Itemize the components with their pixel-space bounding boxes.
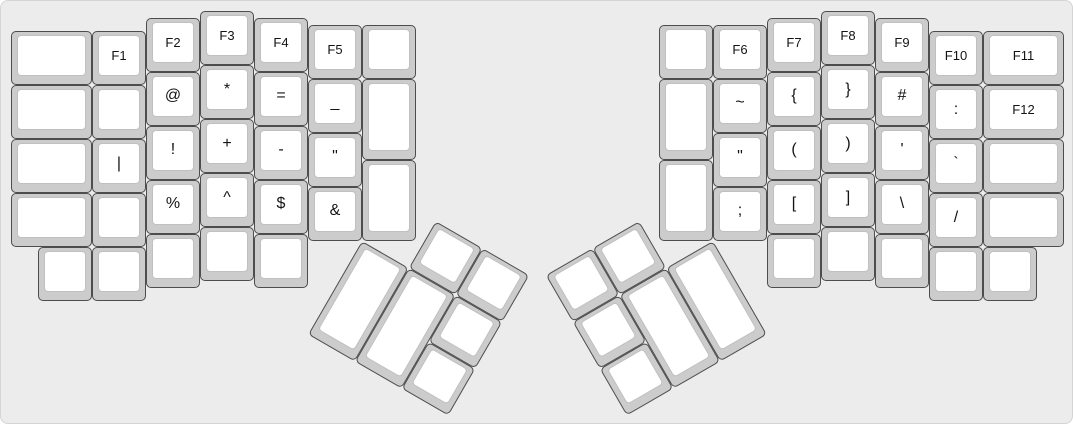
keycap-top: ( (773, 130, 815, 171)
key-blank[interactable] (200, 227, 254, 281)
keycap-top (98, 89, 140, 130)
key-tilde[interactable]: ~ (713, 79, 767, 133)
keycap-top: ` (935, 143, 977, 184)
key-legend: F5 (327, 43, 342, 56)
keycap-top (665, 164, 707, 232)
keycap-top: # (881, 76, 923, 117)
key-legend: & (330, 203, 341, 219)
key-blank[interactable] (11, 31, 92, 85)
key-double-quote[interactable]: " (308, 133, 362, 187)
key-open-brace[interactable]: { (767, 72, 821, 126)
keycap-top: $ (260, 184, 302, 225)
key-blank[interactable] (362, 160, 416, 241)
key-legend: ! (171, 142, 175, 158)
key-blank[interactable] (929, 247, 983, 301)
keycap-top (989, 251, 1031, 292)
key-legend: F8 (840, 29, 855, 42)
key-f10[interactable]: F10 (929, 31, 983, 85)
keycap-top: F5 (314, 29, 356, 70)
keycap-top (98, 197, 140, 238)
keycap-top: F7 (773, 22, 815, 63)
keycap-top: ~ (719, 83, 761, 124)
key-legend: F11 (1013, 49, 1034, 62)
key-legend: - (278, 142, 283, 158)
key-legend: @ (165, 88, 181, 104)
key-slash[interactable]: / (929, 193, 983, 247)
keycap-top: { (773, 76, 815, 117)
key-blank[interactable] (659, 160, 713, 241)
key-legend: ; (738, 203, 742, 219)
keycap-top: ; (719, 191, 761, 232)
keycap-top: ] (827, 177, 869, 218)
keyboard-layout-board: F1F2F3F4F5@*=_|!+-"%^$&F6F7F8F9F10F11~{}… (0, 0, 1073, 424)
keycap-top (17, 89, 86, 130)
keycap-top: : (935, 89, 977, 130)
key-blank[interactable] (821, 227, 875, 281)
key-legend: F2 (165, 36, 180, 49)
keycap-top: ^ (206, 177, 248, 218)
key-legend: } (845, 82, 850, 98)
keycap-top (44, 251, 86, 292)
key-caret[interactable]: ^ (200, 173, 254, 227)
key-blank[interactable] (659, 79, 713, 160)
key-legend: = (276, 88, 285, 104)
key-f5[interactable]: F5 (308, 25, 362, 79)
key-legend: ( (791, 142, 796, 158)
keycap-top: & (314, 191, 356, 232)
keycap-top: ) (827, 123, 869, 164)
keycap-top (665, 83, 707, 151)
keycap-top: [ (773, 184, 815, 225)
keycap-top (260, 238, 302, 279)
keycap-top: - (260, 130, 302, 171)
keycap-top: / (935, 197, 977, 238)
keycap-top (368, 29, 410, 70)
key-plus[interactable]: + (200, 119, 254, 173)
key-apostrophe[interactable]: ' (875, 126, 929, 180)
keycap-top (17, 35, 86, 76)
key-legend: { (791, 88, 796, 104)
keycap-top: ' (881, 130, 923, 171)
key-blank[interactable] (875, 234, 929, 288)
key-legend: F12 (1012, 103, 1034, 116)
key-blank[interactable] (983, 247, 1037, 301)
key-blank[interactable] (362, 79, 416, 160)
key-blank[interactable] (254, 234, 308, 288)
keycap-top: " (314, 137, 356, 178)
key-blank[interactable] (38, 247, 92, 301)
key-close-brace[interactable]: } (821, 65, 875, 119)
keycap-top: \ (881, 184, 923, 225)
keycap-top: F4 (260, 22, 302, 63)
key-hash[interactable]: # (875, 72, 929, 126)
key-close-paren[interactable]: ) (821, 119, 875, 173)
keycap-top: % (152, 184, 194, 225)
key-blank[interactable] (11, 139, 92, 193)
keycap-top (881, 238, 923, 279)
key-legend: $ (277, 196, 286, 212)
keycap-top: F2 (152, 22, 194, 63)
key-legend: : (954, 102, 958, 118)
key-legend: ) (845, 136, 850, 152)
key-legend: F9 (894, 36, 909, 49)
key-f11[interactable]: F11 (983, 31, 1064, 85)
keycap-top: @ (152, 76, 194, 117)
keycap-top: = (260, 76, 302, 117)
key-blank[interactable] (11, 193, 92, 247)
key-minus[interactable]: - (254, 126, 308, 180)
key-equals[interactable]: = (254, 72, 308, 126)
keycap-top (600, 227, 657, 284)
key-open-paren[interactable]: ( (767, 126, 821, 180)
keycap-top: F3 (206, 15, 248, 56)
key-blank[interactable] (983, 139, 1064, 193)
keycap-top (989, 143, 1058, 184)
key-backslash[interactable]: \ (875, 180, 929, 234)
key-close-bracket[interactable]: ] (821, 173, 875, 227)
keycap-top (17, 143, 86, 184)
keycap-top (98, 251, 140, 292)
key-blank[interactable] (92, 247, 146, 301)
key-colon[interactable]: : (929, 85, 983, 139)
key-pipe[interactable]: | (92, 139, 146, 193)
key-f7[interactable]: F7 (767, 18, 821, 72)
key-blank[interactable] (92, 193, 146, 247)
key-legend: F1 (111, 49, 126, 62)
key-legend: _ (331, 95, 340, 111)
key-legend: # (898, 88, 907, 104)
keycap-top: F11 (989, 35, 1058, 76)
key-legend: * (224, 82, 230, 98)
key-underscore[interactable]: _ (308, 79, 362, 133)
key-legend: [ (792, 196, 796, 212)
keycap-top (152, 238, 194, 279)
keycap-top (206, 231, 248, 272)
key-legend: ~ (735, 95, 744, 111)
key-asterisk[interactable]: * (200, 65, 254, 119)
key-legend: ' (900, 142, 903, 158)
keycap-top: " (719, 137, 761, 178)
key-legend: ^ (223, 190, 231, 206)
key-exclamation[interactable]: ! (146, 126, 200, 180)
keycap-top: _ (314, 83, 356, 124)
key-f3[interactable]: F3 (200, 11, 254, 65)
key-blank[interactable] (146, 234, 200, 288)
key-legend: F3 (219, 29, 234, 42)
keycap-top (935, 251, 977, 292)
key-blank[interactable] (11, 85, 92, 139)
key-legend: ] (846, 190, 850, 206)
key-legend: F10 (945, 49, 967, 62)
keycap-top: + (206, 123, 248, 164)
key-legend: F6 (732, 43, 747, 56)
keycap-top: F9 (881, 22, 923, 63)
keycap-top (465, 254, 522, 311)
keycap-top: F8 (827, 15, 869, 56)
key-legend: \ (900, 196, 904, 212)
key-f4[interactable]: F4 (254, 18, 308, 72)
key-f2[interactable]: F2 (146, 18, 200, 72)
key-legend: " (737, 149, 743, 165)
key-legend: F7 (786, 36, 801, 49)
key-semicolon[interactable]: ; (713, 187, 767, 241)
keycap-top (368, 83, 410, 151)
keycap-top: * (206, 69, 248, 110)
key-blank[interactable] (983, 193, 1064, 247)
key-double-quote[interactable]: " (713, 133, 767, 187)
key-f12[interactable]: F12 (983, 85, 1064, 139)
key-percent[interactable]: % (146, 180, 200, 234)
keycap-top: F10 (935, 35, 977, 76)
key-legend: F4 (273, 36, 288, 49)
keycap-top: F1 (98, 35, 140, 76)
keycap-top: ! (152, 130, 194, 171)
key-blank[interactable] (92, 85, 146, 139)
key-legend: + (222, 136, 231, 152)
key-backtick[interactable]: ` (929, 139, 983, 193)
key-legend: % (166, 196, 180, 212)
key-legend: " (332, 149, 338, 165)
key-f8[interactable]: F8 (821, 11, 875, 65)
key-f1[interactable]: F1 (92, 31, 146, 85)
keycap-top: | (98, 143, 140, 184)
key-dollar[interactable]: $ (254, 180, 308, 234)
keycap-top (827, 231, 869, 272)
keycap-top: F6 (719, 29, 761, 70)
key-blank[interactable] (659, 25, 713, 79)
key-legend: ` (953, 156, 958, 172)
keycap-top: F12 (989, 89, 1058, 130)
key-legend: / (954, 210, 958, 226)
keycap-top (989, 197, 1058, 238)
key-legend: | (117, 156, 121, 172)
key-ampersand[interactable]: & (308, 187, 362, 241)
key-open-bracket[interactable]: [ (767, 180, 821, 234)
keycap-top (368, 164, 410, 232)
keycap-top (665, 29, 707, 70)
keycap-top (17, 197, 86, 238)
key-blank[interactable] (767, 234, 821, 288)
key-blank[interactable] (362, 25, 416, 79)
key-f6[interactable]: F6 (713, 25, 767, 79)
keycap-top (773, 238, 815, 279)
keycap-top: } (827, 69, 869, 110)
key-f9[interactable]: F9 (875, 18, 929, 72)
key-at[interactable]: @ (146, 72, 200, 126)
